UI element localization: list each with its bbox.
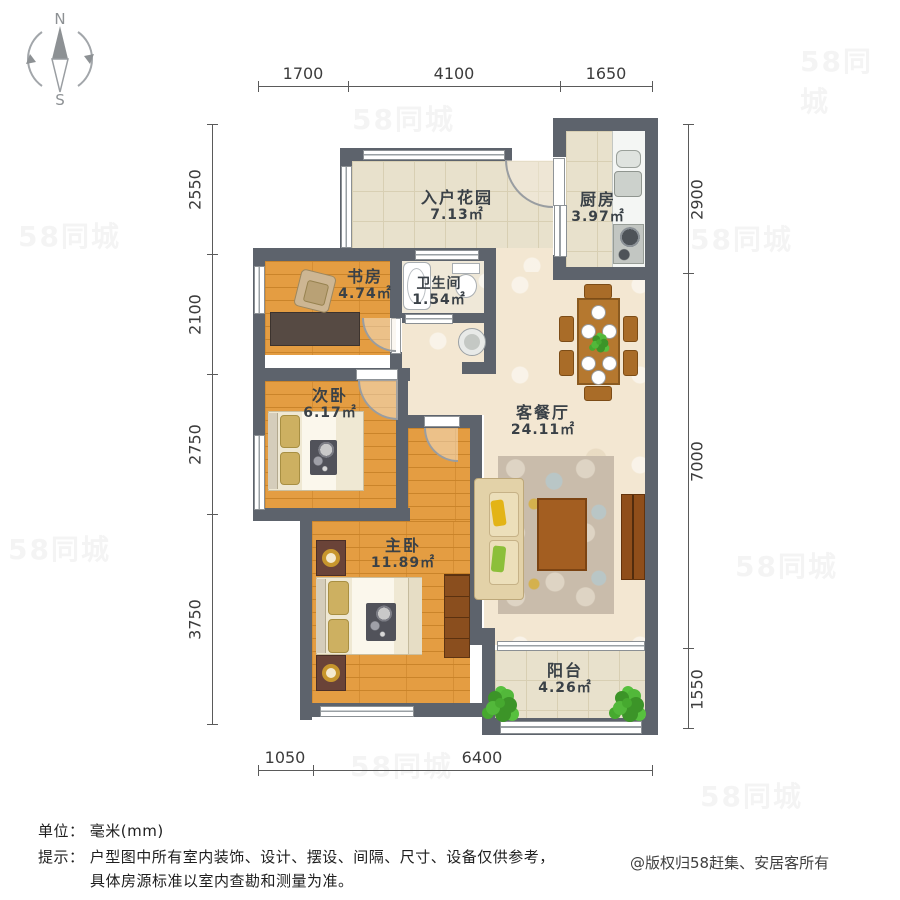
- watermark: 58同城: [700, 775, 803, 815]
- second-bedroom-window: [254, 435, 265, 510]
- dim-top-1: 1700: [268, 64, 338, 83]
- dim-bottom-1: 1050: [250, 748, 320, 767]
- watermark: 58同城: [800, 40, 900, 120]
- room-area: 24.11㎡: [491, 422, 595, 438]
- dim-tick: [560, 81, 561, 92]
- entry-passage-floor: [496, 248, 553, 272]
- watermark: 58同城: [350, 745, 453, 785]
- second-bedroom-door-leaf: [356, 369, 398, 380]
- master-wardrobe: [444, 574, 470, 658]
- plate: [581, 324, 596, 339]
- watermark: 58同城: [735, 545, 838, 585]
- wall-master-top: [253, 508, 410, 521]
- master-bed-pillow: [328, 581, 349, 615]
- watermark: 58同城: [352, 98, 455, 138]
- floorplan-page: N S 58同城 58同城 58同城 58同城 58同城 58同城 58同城 5…: [0, 0, 900, 900]
- dim-tick: [683, 728, 694, 729]
- table-plant: [596, 339, 602, 345]
- tip-label: 提示：: [38, 848, 85, 866]
- kitchen-sink-top: [616, 150, 641, 168]
- dim-tick: [207, 124, 218, 125]
- unit-label: 单位：: [38, 822, 85, 840]
- dim-tick: [652, 765, 653, 776]
- dim-left-4: 3750: [186, 585, 205, 655]
- kitchen-stove: [613, 224, 644, 264]
- dim-tick: [683, 273, 694, 274]
- room-name: 入户花园: [397, 189, 517, 207]
- room-name: 次卧: [287, 387, 373, 405]
- watermark: 58同城: [8, 528, 111, 568]
- dining-chair: [623, 316, 638, 342]
- wall-kitchen-top: [553, 118, 658, 131]
- room-area: 1.54㎡: [398, 292, 480, 308]
- tip-text-2: 具体房源标准以室内查勘和测量为准。: [90, 872, 354, 890]
- wall-kitchen-bottom: [553, 267, 645, 280]
- room-label-study: 书房 4.74㎡: [320, 268, 410, 302]
- dim-left-2: 2100: [186, 280, 205, 350]
- dim-right-1: 2900: [688, 165, 707, 235]
- bathroom-sliding-door: [405, 314, 453, 324]
- wall-right-outer: [645, 118, 658, 735]
- dining-chair: [623, 350, 638, 376]
- master-door-leaf: [424, 416, 460, 427]
- tip-text-1: 户型图中所有室内装饰、设计、摆设、间隔、尺寸、设备仅供参考，: [90, 848, 555, 866]
- dim-tick: [207, 254, 218, 255]
- master-lamp: [322, 664, 340, 682]
- bathroom-top-window: [415, 250, 479, 260]
- dim-bottom-2: 6400: [447, 748, 517, 767]
- dining-chair: [559, 350, 574, 376]
- plate: [602, 356, 617, 371]
- dining-chair: [584, 386, 612, 401]
- dim-left-1: 2550: [186, 155, 205, 225]
- wall-kitchen-left-upper: [553, 131, 566, 157]
- dining-chair: [559, 316, 574, 342]
- room-label-living-dining: 客餐厅 24.11㎡: [491, 404, 595, 438]
- dim-tick: [683, 648, 694, 649]
- dim-line-bottom: [258, 770, 653, 771]
- coffee-table: [537, 498, 587, 571]
- room-label-kitchen: 厨房 3.97㎡: [557, 191, 639, 225]
- sofa-pillow-green: [491, 545, 507, 572]
- dim-right-3: 1550: [688, 655, 707, 725]
- garden-top-window: [363, 150, 505, 160]
- master-bed-footroll: [408, 578, 422, 654]
- room-name: 主卧: [351, 537, 455, 555]
- dim-left-3: 2750: [186, 410, 205, 480]
- plate: [581, 356, 596, 371]
- room-label-second-bedroom: 次卧 6.17㎡: [287, 387, 373, 421]
- master-bed-pillow: [328, 619, 349, 653]
- dim-tick: [348, 81, 349, 92]
- dim-tick: [652, 81, 653, 92]
- dim-right-2: 7000: [688, 427, 707, 497]
- wall-study-right-stub: [390, 352, 402, 368]
- room-label-master-bedroom: 主卧 11.89㎡: [351, 537, 455, 571]
- dining-chair: [584, 284, 612, 299]
- tip-line-2: 具体房源标准以室内查勘和测量为准。: [90, 870, 354, 891]
- study-window: [254, 266, 265, 314]
- unit-note: 单位： 毫米(mm): [38, 820, 164, 841]
- dim-line-top: [258, 86, 653, 87]
- balcony-plant: [622, 698, 632, 708]
- balcony-railing: [500, 721, 642, 734]
- washbasin-bowl: [464, 334, 480, 350]
- room-area: 6.17㎡: [287, 405, 373, 421]
- room-name: 厨房: [557, 191, 639, 209]
- room-label-balcony: 阳台 4.26㎡: [513, 662, 617, 696]
- second-bed-blanket: [310, 440, 337, 475]
- room-name: 阳台: [513, 662, 617, 680]
- unit-value: 毫米(mm): [90, 822, 164, 840]
- dim-tick: [683, 124, 694, 125]
- dim-tick: [258, 81, 259, 92]
- watermark: 58同城: [18, 215, 121, 255]
- second-bed-headboard: [268, 413, 278, 489]
- room-area: 3.97㎡: [557, 209, 639, 225]
- master-lamp: [322, 549, 340, 567]
- room-area: 11.89㎡: [351, 555, 455, 571]
- dim-line-left: [212, 124, 213, 724]
- garden-left-window: [341, 166, 352, 248]
- balcony-plant: [495, 698, 505, 708]
- room-name: 客餐厅: [491, 404, 595, 422]
- balcony-sliding-door: [497, 641, 645, 651]
- dim-top-2: 4100: [419, 64, 489, 83]
- room-area: 7.13㎡: [397, 207, 517, 223]
- master-bedroom-window: [320, 706, 414, 717]
- dim-top-3: 1650: [571, 64, 641, 83]
- room-area: 4.74㎡: [320, 286, 410, 302]
- wall-basin-stub: [462, 362, 496, 374]
- plate: [591, 370, 606, 385]
- tip-line-1: 提示： 户型图中所有室内装饰、设计、摆设、间隔、尺寸、设备仅供参考，: [38, 846, 555, 867]
- study-desk: [270, 312, 360, 346]
- compass-south-label: S: [55, 91, 65, 106]
- compass-icon: N S: [12, 10, 108, 106]
- room-area: 4.26㎡: [513, 680, 617, 696]
- room-name: 卫生间: [398, 276, 480, 292]
- room-label-entry-garden: 入户花园 7.13㎡: [397, 189, 517, 223]
- dim-tick: [207, 374, 218, 375]
- master-bed-headboard: [316, 579, 326, 653]
- copyright-note: @版权归58赶集、安居客所有: [630, 852, 829, 873]
- plate: [591, 305, 606, 320]
- wall-master-left: [300, 508, 312, 720]
- wall-bathroom-right: [484, 248, 496, 374]
- toilet-tank: [452, 263, 480, 274]
- tv-console: [621, 494, 645, 580]
- dim-tick: [207, 724, 218, 725]
- room-name: 书房: [320, 268, 410, 286]
- plate: [602, 324, 617, 339]
- master-bed-blanket: [366, 603, 396, 641]
- second-bed-pillow: [280, 452, 300, 485]
- room-label-bathroom: 卫生间 1.54㎡: [398, 276, 480, 308]
- compass-north-label: N: [54, 10, 65, 28]
- dim-tick: [207, 514, 218, 515]
